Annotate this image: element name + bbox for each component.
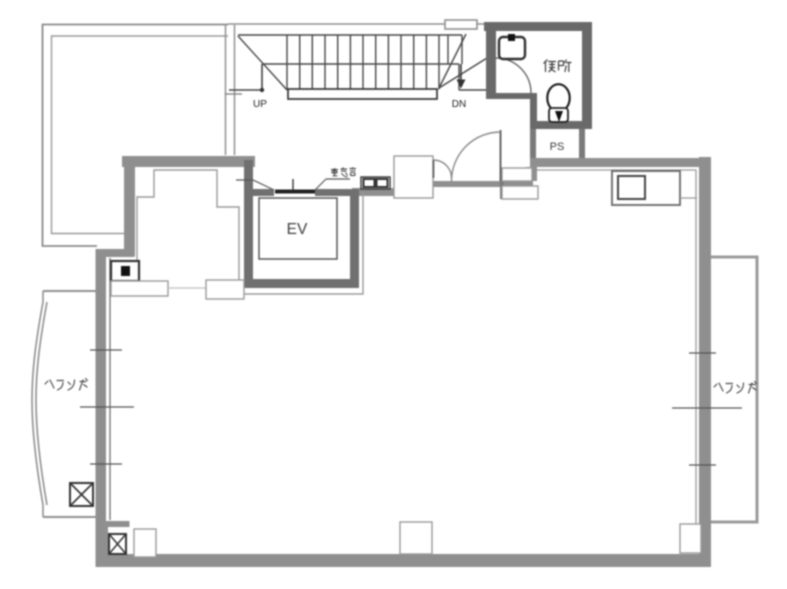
svg-text:DN: DN (452, 99, 466, 110)
svg-text:PS: PS (550, 141, 565, 153)
svg-text:EV: EV (287, 221, 308, 238)
svg-text:UP: UP (253, 99, 267, 110)
